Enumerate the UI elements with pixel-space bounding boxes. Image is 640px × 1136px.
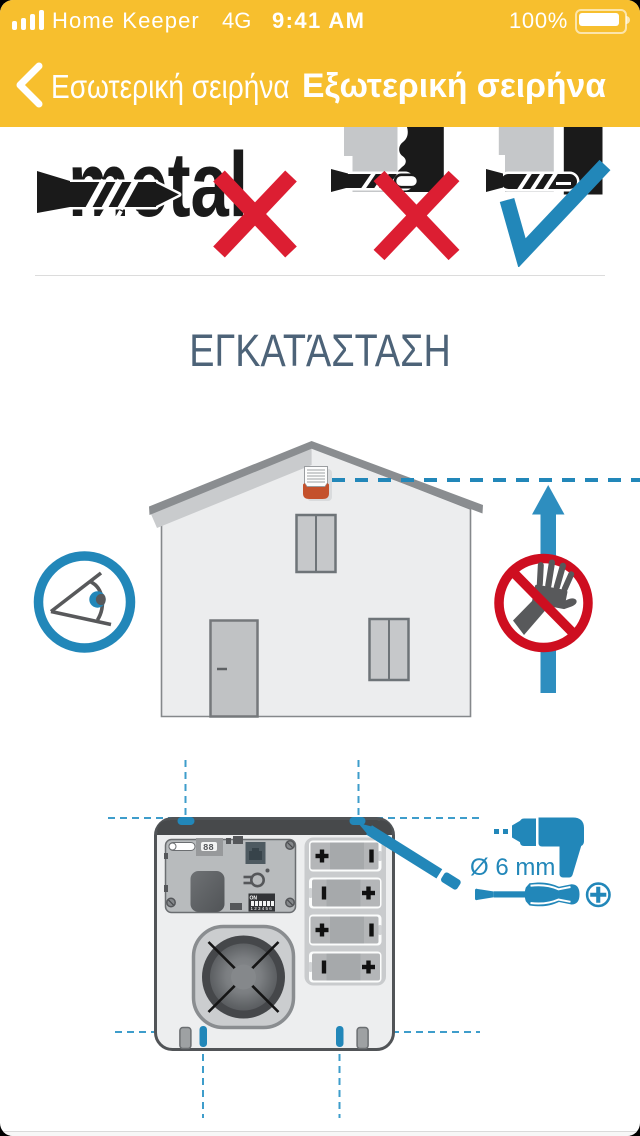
svg-text:1 2 3 4 5 6: 1 2 3 4 5 6 bbox=[251, 906, 273, 911]
svg-text:88: 88 bbox=[203, 843, 214, 853]
svg-text:Ø 6 mm: Ø 6 mm bbox=[470, 854, 555, 881]
svg-text:ON: ON bbox=[250, 896, 258, 902]
